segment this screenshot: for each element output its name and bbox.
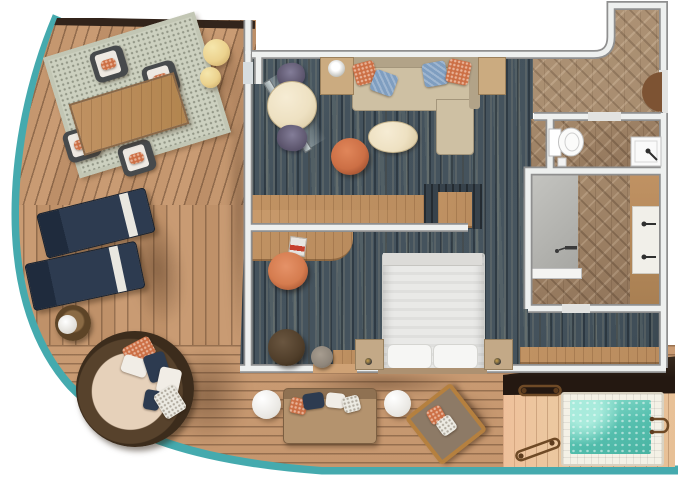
- floor-plan: [0, 0, 680, 486]
- round-side-table: [252, 390, 281, 419]
- vanity-counter: [632, 206, 662, 274]
- throw-pillow-blue: [421, 60, 449, 88]
- sofa-chaise: [436, 99, 474, 155]
- console-divider-lower: [252, 210, 425, 227]
- nightstand: [484, 339, 513, 370]
- wc-floor: [531, 119, 661, 169]
- throw-pillow-orange: [445, 58, 472, 86]
- small-round-table: [311, 346, 333, 368]
- hot-tub-water: [570, 400, 651, 454]
- wardrobe-shelf: [438, 192, 472, 228]
- lounger-towel-stripe: [109, 246, 127, 293]
- oval-coffee-table: [368, 121, 418, 153]
- round-table: [267, 81, 317, 131]
- pouf: [200, 67, 221, 88]
- nightstand-lamp: [494, 358, 501, 365]
- nightstand: [355, 339, 384, 370]
- bed-pillow: [433, 344, 478, 369]
- desk-chair: [268, 252, 308, 290]
- end-table: [478, 57, 506, 95]
- round-side-table: [384, 390, 411, 417]
- walk-in-shower: [531, 175, 578, 270]
- nightstand-lamp: [365, 358, 372, 365]
- passage-bench: [520, 347, 661, 364]
- swivel-chair: [331, 138, 369, 175]
- wicker-table-ball: [58, 315, 77, 334]
- bed-pillow: [387, 344, 432, 369]
- ottoman: [268, 329, 305, 366]
- lounger-towel-stripe: [118, 193, 137, 238]
- pouf: [203, 39, 230, 66]
- headboard: [378, 368, 487, 374]
- shower-half-wall: [531, 268, 582, 279]
- table-lamp: [328, 60, 345, 77]
- sofa-pillow: [302, 392, 325, 411]
- duvet-fold: [383, 253, 482, 266]
